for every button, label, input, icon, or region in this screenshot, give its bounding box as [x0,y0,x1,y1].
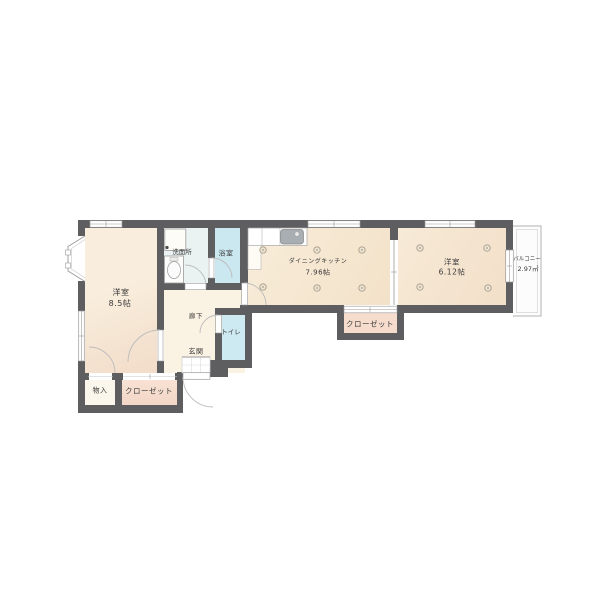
floor-plan: 洋室 8.5帖 ダイニングキッチン 7.96帖 洋室 6.12帖 バルコニー 2… [0,0,600,600]
label-dining-kitchen-size: 7.96帖 [305,270,330,277]
sliding-door-balcony [506,250,514,282]
room-toilet-floor [222,315,245,360]
wall-segment [337,333,404,340]
sliding-door-closet-bedroom [123,374,177,379]
bay-window [66,236,86,282]
wall-segment [175,373,183,380]
wall-segment [206,283,247,290]
label-bedroom-right-size: 6.12帖 [439,268,466,276]
label-hallway: 廊下 [189,313,203,320]
wall-segment [215,333,222,361]
wall-segment [112,373,123,380]
wall-segment [215,308,252,315]
label-bedroom-left-name: 洋室 [113,289,130,297]
wall-segment [210,360,228,377]
wall-segment [78,281,85,311]
label-washroom: 洗面所 [172,249,192,256]
label-storage: 物入 [93,388,108,395]
window [79,311,85,361]
label-dining-kitchen-name: ダイニングキッチン [289,259,348,265]
label-bathroom: 浴室 [219,251,234,258]
label-bedroom-right-name: 洋室 [444,258,460,266]
wall-segment [390,220,398,240]
label-toilet: トイレ [221,329,241,336]
wall-segment [506,220,513,250]
wall-segment [115,380,122,405]
wall-segment [157,361,164,373]
wall-segment [78,220,85,236]
room-dining-kitchen-floor [248,228,390,305]
wall-segment [506,282,513,313]
label-closet-bedroom: クローゼット [125,387,173,395]
label-balcony-name: バルコニー [513,257,540,263]
sliding-door-closet [344,306,397,313]
wall-segment [228,360,252,368]
wall-segment [208,220,215,258]
wall-segment [157,220,164,330]
door-entrance [183,373,213,407]
label-closet-hall: クローゼット [346,320,394,328]
wall-segment [157,283,185,290]
label-balcony-size: 2.97㎡ [518,266,539,273]
label-entrance: 玄関 [189,349,204,356]
sliding-partition [391,240,397,305]
wall-segment [240,305,337,313]
wall-segment [78,220,513,228]
label-bedroom-left-size: 8.5帖 [109,300,132,308]
wall-segment [78,405,183,413]
wall-segment [397,305,513,313]
wall-segment [240,220,248,283]
wall-segment [85,373,89,380]
